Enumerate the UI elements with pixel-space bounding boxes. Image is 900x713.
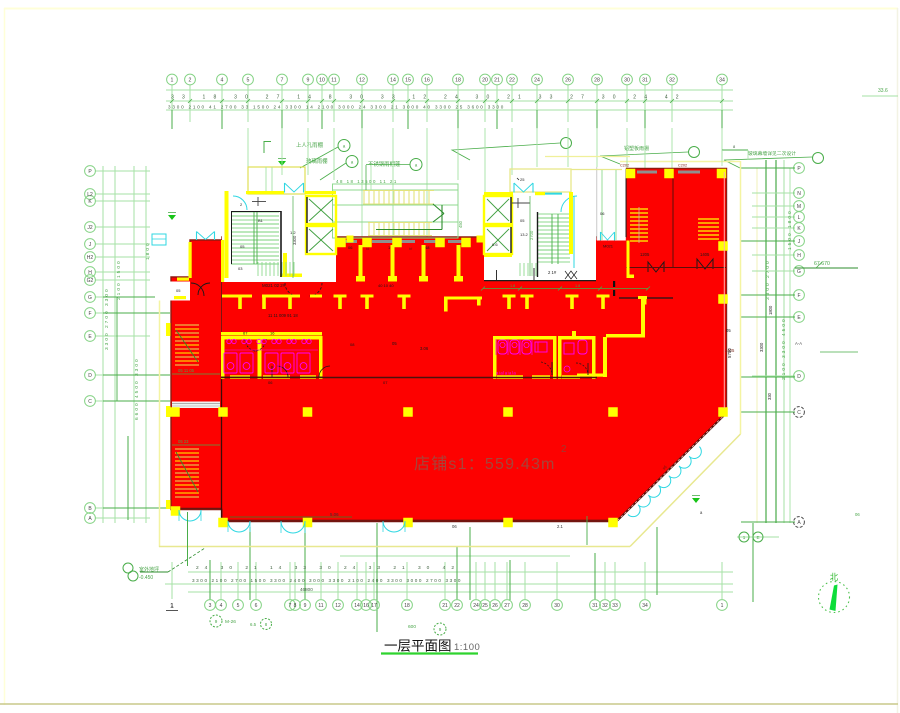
svg-text:33.6: 33.6: [878, 88, 888, 94]
svg-text:1.8: 1.8: [575, 284, 580, 288]
svg-text:3300 2700 3300: 3300 2700 3300: [104, 287, 110, 350]
svg-text:32: 32: [602, 603, 608, 609]
svg-text:上人孔雨棚: 上人孔雨棚: [296, 141, 323, 149]
svg-text:8: 8: [294, 603, 297, 609]
svg-text:18: 18: [404, 603, 410, 609]
svg-text:0.6: 0.6: [492, 242, 498, 247]
svg-text:22: 22: [509, 78, 515, 84]
svg-text:5: 5: [237, 603, 240, 609]
svg-text:32: 32: [669, 78, 675, 84]
svg-text:1.8: 1.8: [510, 284, 515, 288]
svg-text:07: 07: [383, 380, 388, 385]
svg-text:06: 06: [452, 524, 457, 529]
svg-text:450: 450: [458, 220, 463, 228]
svg-text:aialaiala: aialaiala: [496, 371, 516, 376]
svg-text:1405: 1405: [700, 252, 710, 257]
svg-text:J2: J2: [87, 225, 93, 231]
svg-text:1:100: 1:100: [454, 642, 480, 653]
svg-text:28: 28: [522, 603, 528, 609]
svg-text:05 23: 05 23: [178, 439, 189, 444]
svg-text:1500 1800: 1500 1800: [787, 209, 793, 250]
svg-text:06: 06: [268, 380, 273, 385]
svg-text:03: 03: [238, 266, 243, 271]
svg-text:6: 6: [255, 603, 258, 609]
svg-text:C: C: [88, 399, 92, 405]
svg-text:M: M: [797, 204, 801, 210]
svg-text:L: L: [798, 215, 801, 221]
svg-text:M-26: M-26: [225, 619, 236, 625]
svg-text:G2: G2: [87, 278, 94, 284]
svg-text:30: 30: [624, 78, 630, 84]
svg-text:3300: 3300: [292, 235, 297, 245]
svg-text:C202: C202: [678, 164, 687, 168]
svg-text:2.1: 2.1: [557, 524, 563, 529]
svg-text:17: 17: [371, 603, 377, 609]
svg-text:H: H: [88, 270, 92, 276]
svg-text:2100 3300 4500: 2100 3300 4500: [781, 317, 787, 380]
svg-text:9: 9: [439, 627, 442, 632]
svg-text:24: 24: [534, 78, 540, 84]
svg-text:2700: 2700: [529, 230, 534, 240]
svg-text:06: 06: [600, 211, 605, 216]
svg-text:11: 11: [318, 603, 323, 609]
svg-text:67: 67: [243, 331, 248, 336]
svg-text:9: 9: [307, 78, 310, 84]
svg-text:玻璃幕墙详见二次设计: 玻璃幕墙详见二次设计: [748, 150, 796, 157]
svg-text:2: 2: [189, 78, 192, 84]
svg-text:30: 30: [554, 603, 560, 609]
svg-text:3: 3: [209, 603, 212, 609]
svg-text:td: td: [366, 247, 369, 251]
svg-text:11 11 009 91 18: 11 11 009 91 18: [268, 313, 298, 318]
svg-text:28: 28: [594, 78, 600, 84]
svg-text:21: 21: [442, 603, 448, 609]
svg-text:22: 22: [454, 603, 460, 609]
svg-text:L2: L2: [87, 192, 93, 198]
svg-text:1800: 1800: [768, 305, 773, 315]
svg-text:1205: 1205: [640, 252, 650, 257]
svg-text:M021: M021: [603, 244, 614, 249]
svg-text:A-A: A-A: [795, 341, 802, 346]
svg-text:7: 7: [289, 603, 292, 609]
svg-text:一层平面图: 一层平面图: [384, 639, 452, 654]
svg-text:a: a: [415, 163, 418, 168]
svg-text:玻璃雨棚: 玻璃雨棚: [306, 157, 328, 165]
svg-text:26: 26: [492, 603, 498, 609]
svg-text:4: 4: [221, 78, 224, 84]
svg-text:26: 26: [565, 78, 571, 84]
svg-text:11: 11: [331, 78, 336, 84]
svg-text:48: 48: [425, 245, 430, 250]
svg-text:10: 10: [319, 78, 325, 84]
svg-text:F: F: [88, 311, 91, 317]
svg-text:G: G: [797, 269, 801, 275]
svg-text:5.06: 5.06: [330, 512, 339, 517]
svg-text:N: N: [797, 191, 801, 197]
svg-text:34: 34: [642, 603, 648, 609]
svg-text:08: 08: [350, 342, 355, 347]
svg-text:E: E: [756, 535, 759, 540]
svg-text:5750: 5750: [727, 348, 732, 358]
svg-text:06: 06: [348, 245, 353, 250]
svg-text:3300 2100 2700 1500 3300 2400: 3300 2100 2700 1500 3300 2400 3000 3300 …: [192, 578, 462, 583]
svg-text:C: C: [797, 410, 801, 416]
svg-text:D: D: [797, 374, 801, 380]
svg-text:1: 1: [171, 603, 174, 609]
svg-text:6.5: 6.5: [250, 622, 257, 627]
svg-text:48 18 13500 11 21: 48 18 13500 11 21: [336, 179, 398, 184]
svg-text:H2: H2: [87, 255, 94, 261]
svg-text:北: 北: [830, 572, 839, 582]
svg-text:M021 02 2#: M021 02 2#: [262, 283, 286, 288]
svg-text:H: H: [797, 253, 801, 259]
svg-text:15: 15: [405, 78, 411, 84]
svg-text:14: 14: [354, 603, 360, 609]
svg-text:店铺s1：559.43m: 店铺s1：559.43m: [414, 455, 556, 473]
svg-text:4: 4: [220, 603, 223, 609]
svg-text:F: F: [797, 293, 800, 299]
svg-text:06: 06: [855, 512, 860, 517]
svg-text:14: 14: [390, 78, 396, 84]
svg-text:25: 25: [520, 177, 525, 182]
svg-text:25: 25: [482, 603, 488, 609]
svg-text:27: 27: [504, 603, 510, 609]
svg-text:3300 2700: 3300 2700: [765, 259, 771, 300]
svg-text:2 1#: 2 1#: [548, 270, 557, 275]
svg-text:3300 2100 41 2700 33 1500 24 3: 3300 2100 41 2700 33 1500 24 3300 14 210…: [168, 105, 505, 110]
svg-text:31: 31: [592, 603, 598, 609]
svg-text:21: 21: [494, 78, 500, 84]
svg-text:2: 2: [561, 444, 567, 455]
svg-text:B1: B1: [258, 218, 264, 223]
svg-text:05: 05: [392, 341, 397, 346]
svg-text:1: 1: [743, 535, 746, 540]
svg-text:20: 20: [482, 78, 488, 84]
svg-text:1800: 1800: [145, 241, 151, 260]
svg-text:600: 600: [408, 624, 416, 630]
svg-text:3.06: 3.06: [420, 346, 429, 351]
svg-text:40 10 40: 40 10 40: [378, 283, 394, 288]
svg-text:67.670: 67.670: [814, 261, 830, 267]
svg-text:33: 33: [612, 603, 618, 609]
svg-text:不锈钢雨棚蓬: 不锈钢雨棚蓬: [368, 160, 401, 168]
svg-text:7: 7: [281, 78, 284, 84]
svg-text:05: 05: [726, 328, 731, 333]
svg-text:16: 16: [270, 331, 275, 336]
svg-text:1: 1: [721, 603, 724, 609]
svg-text:C202: C202: [620, 164, 629, 168]
svg-text:G: G: [88, 295, 92, 301]
svg-text:330: 330: [767, 392, 772, 400]
svg-text:24: 24: [473, 603, 479, 609]
svg-text:1: 1: [171, 78, 174, 84]
svg-text:13.2: 13.2: [520, 232, 529, 237]
svg-text:18: 18: [455, 78, 461, 84]
svg-text:05 11 05: 05 11 05: [178, 368, 195, 373]
svg-text:3300: 3300: [759, 342, 764, 352]
svg-text:12: 12: [359, 78, 365, 84]
svg-text:a: a: [351, 160, 354, 165]
svg-text:16: 16: [424, 78, 430, 84]
svg-text:9: 9: [215, 619, 218, 624]
svg-text:24 30 21 14 33 30: 24 30 21 14 33 30 24 33 21 30 42: [196, 565, 460, 571]
svg-text:12: 12: [335, 603, 341, 609]
svg-text:31: 31: [642, 78, 648, 84]
svg-text:2100 1500: 2100 1500: [116, 259, 122, 300]
svg-text:05: 05: [520, 218, 525, 223]
svg-text:a: a: [343, 144, 346, 149]
svg-text:6600 4500 3300: 6600 4500 3300: [134, 357, 140, 420]
svg-text:-0.450: -0.450: [139, 575, 153, 581]
svg-text:D: D: [88, 373, 92, 379]
svg-text:5: 5: [247, 78, 250, 84]
svg-text:46800: 46800: [300, 587, 313, 592]
svg-text:9: 9: [304, 603, 307, 609]
svg-text:05: 05: [176, 288, 181, 293]
svg-text:05: 05: [240, 244, 245, 249]
svg-text:34: 34: [719, 78, 725, 84]
svg-text:16: 16: [363, 603, 369, 609]
